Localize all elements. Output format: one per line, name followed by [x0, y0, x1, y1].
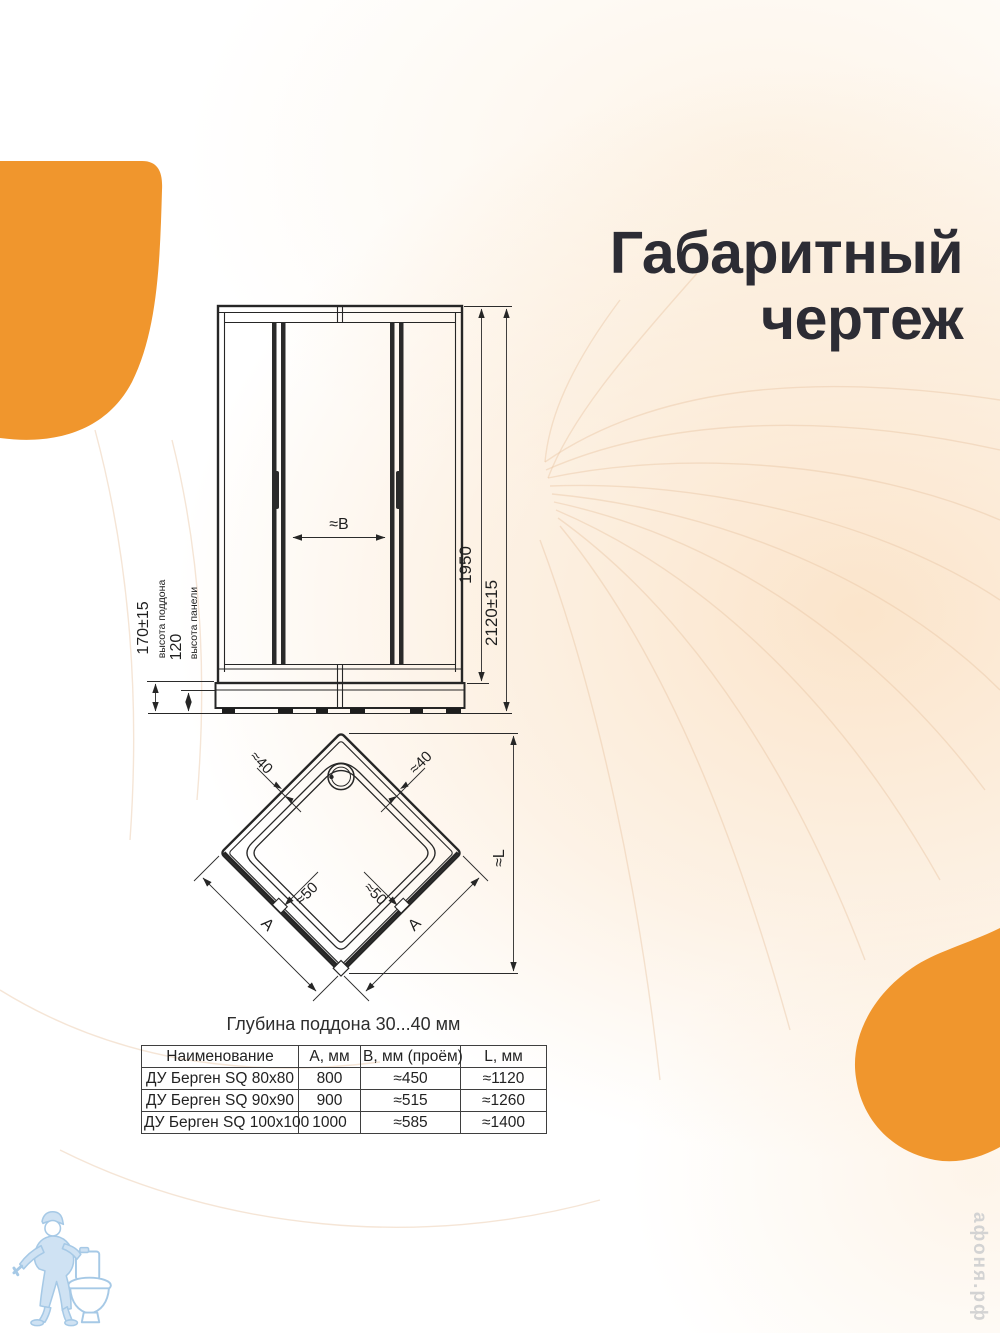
- plumber-shoe-right: [65, 1320, 78, 1326]
- plumber-head: [45, 1220, 61, 1236]
- tray-depth-caption: Глубина поддона 30...40 мм: [141, 1014, 546, 1035]
- dim-profile-right: ≈40: [406, 748, 436, 778]
- door-rails: [272, 322, 404, 664]
- site-watermark: афоня.рф: [968, 1212, 990, 1323]
- front-view-dimensions: [147, 307, 512, 712]
- profile-arrowheads: [274, 782, 409, 804]
- cabin-frame: [218, 306, 462, 683]
- dim-profile-left: ≈40: [246, 748, 276, 778]
- plumber-logo: [12, 1206, 138, 1328]
- page-title-line1: Габаритный: [610, 220, 963, 286]
- model-name: ДУ Берген SQ 80x80: [142, 1068, 299, 1090]
- toilet-button: [80, 1248, 89, 1253]
- plan-handle-right: [395, 898, 410, 913]
- dim-side-left: A: [257, 915, 277, 935]
- dim-tray-height-label: высота поддона: [156, 580, 168, 659]
- drain-hole: [323, 758, 360, 795]
- value-l: ≈1400: [461, 1112, 547, 1134]
- dim-panel-height-label: высота панели: [188, 587, 200, 659]
- plan-handle-left: [272, 898, 287, 913]
- dim-door-opening: ≈B: [329, 516, 348, 533]
- door-handle-right: [396, 471, 402, 509]
- toilet-bowl: [70, 1288, 109, 1313]
- toilet-base: [82, 1313, 99, 1323]
- door-handle-left: [273, 471, 279, 509]
- value-b: ≈585: [361, 1112, 461, 1134]
- page-title: Габаритный чертеж: [610, 220, 963, 352]
- col-l: L, мм: [461, 1046, 547, 1068]
- dim-panel-height: 120: [168, 634, 185, 661]
- value-a: 900: [299, 1090, 361, 1112]
- value-l: ≈1260: [461, 1090, 547, 1112]
- dim-inner-height: 1950: [456, 546, 475, 584]
- dim-diagonal: ≈L: [491, 849, 508, 867]
- col-a: А, мм: [299, 1046, 361, 1068]
- table-header-row: Наименование А, мм B, мм (проём) L, мм: [142, 1046, 547, 1068]
- value-l: ≈1120: [461, 1068, 547, 1090]
- model-name: ДУ Берген SQ 90x90: [142, 1090, 299, 1112]
- table-row: ДУ Берген SQ 90x90 900 ≈515 ≈1260: [142, 1090, 547, 1112]
- tray-apron: [216, 683, 465, 708]
- value-b: ≈450: [361, 1068, 461, 1090]
- table-row: ДУ Берген SQ 80x80 800 ≈450 ≈1120: [142, 1068, 547, 1090]
- page-title-line2: чертеж: [610, 286, 963, 352]
- front-view: [148, 306, 512, 714]
- col-name: Наименование: [142, 1046, 299, 1068]
- dim-offset-right: ≈50: [360, 879, 390, 909]
- value-a: 800: [299, 1068, 361, 1090]
- dim-side-right: A: [405, 915, 425, 935]
- wrench-icon: [14, 1266, 22, 1275]
- page: { "colors": { "accent_orange": "#F0962D"…: [0, 0, 1000, 1333]
- dim-total-height: 2120±15: [482, 580, 501, 646]
- plumber-shoe-left: [31, 1320, 44, 1326]
- col-b: B, мм (проём): [361, 1046, 461, 1068]
- dim-tray-height: 170±15: [135, 601, 152, 654]
- size-table: Наименование А, мм B, мм (проём) L, мм Д…: [141, 1045, 547, 1134]
- dim-offset-left: ≈50: [292, 879, 322, 909]
- value-b: ≈515: [361, 1090, 461, 1112]
- table-row: ДУ Берген SQ 100x100 1000 ≈585 ≈1400: [142, 1112, 547, 1134]
- model-name: ДУ Берген SQ 100x100: [142, 1112, 299, 1134]
